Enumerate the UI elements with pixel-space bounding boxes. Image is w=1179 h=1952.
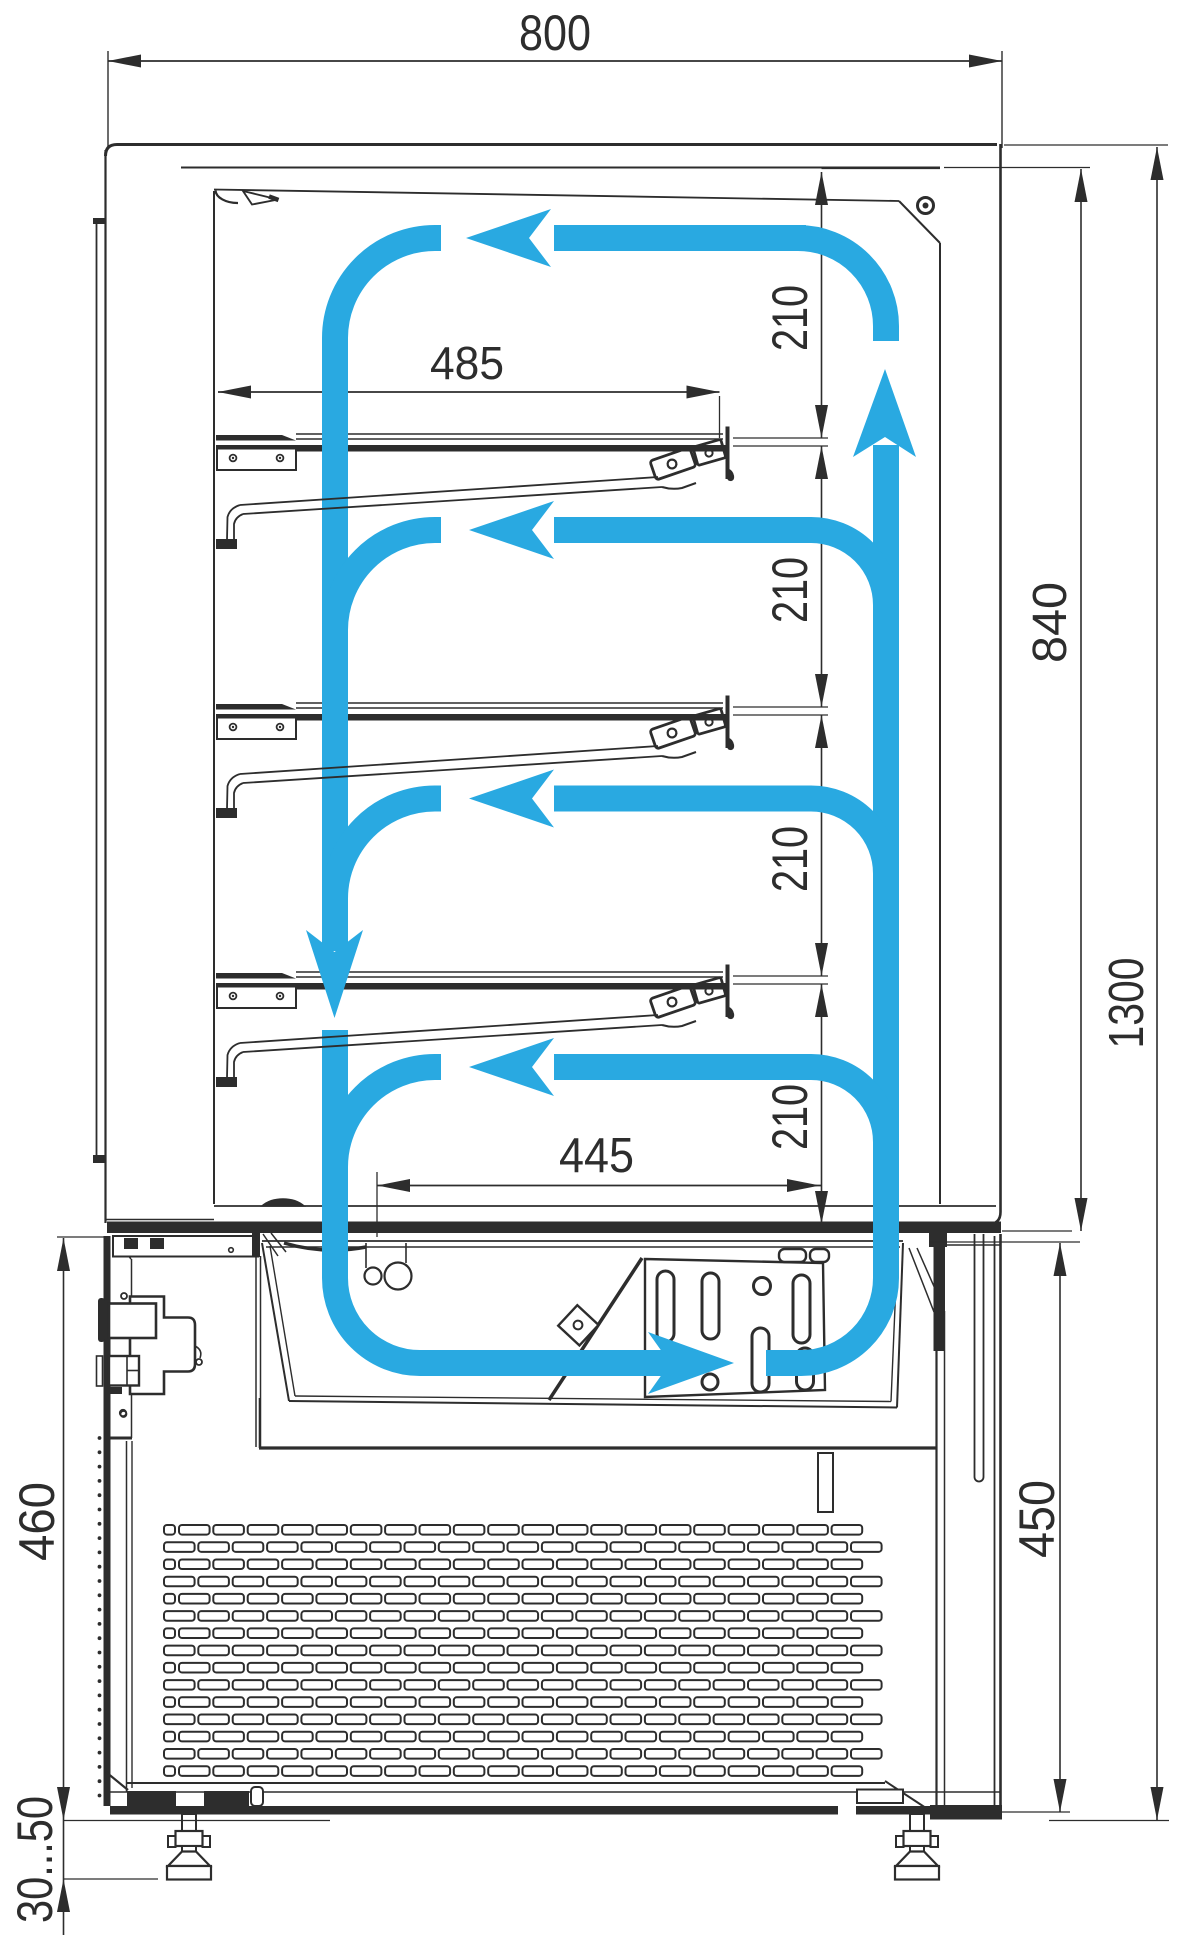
- svg-text:800: 800: [519, 5, 591, 61]
- svg-text:210: 210: [762, 1084, 818, 1150]
- svg-text:460: 460: [9, 1482, 65, 1561]
- svg-text:210: 210: [762, 826, 818, 892]
- svg-text:445: 445: [559, 1129, 634, 1183]
- svg-text:30...50: 30...50: [7, 1796, 63, 1923]
- svg-text:1300: 1300: [1100, 958, 1154, 1049]
- svg-text:840: 840: [1024, 582, 1077, 663]
- svg-text:485: 485: [430, 337, 504, 389]
- svg-text:450: 450: [1009, 1480, 1065, 1558]
- svg-text:210: 210: [762, 285, 818, 351]
- svg-text:210: 210: [762, 557, 818, 623]
